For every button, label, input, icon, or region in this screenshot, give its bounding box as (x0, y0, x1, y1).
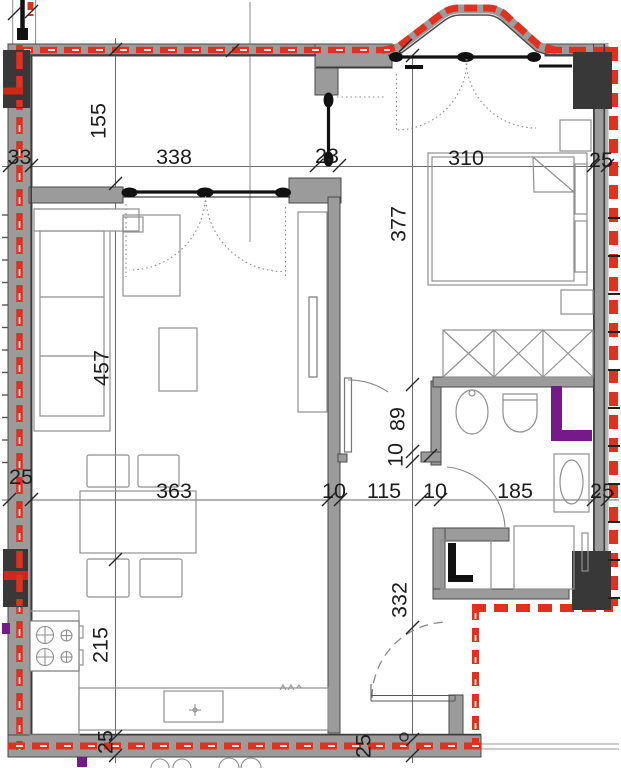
svg-text:310: 310 (448, 146, 484, 170)
svg-text:115: 115 (367, 479, 401, 503)
svg-text:338: 338 (156, 145, 192, 169)
svg-text:25: 25 (9, 465, 33, 489)
svg-text:332: 332 (388, 582, 412, 618)
svg-text:10: 10 (322, 479, 346, 503)
svg-text:363: 363 (156, 479, 192, 503)
svg-text:25: 25 (590, 479, 614, 503)
svg-text:155: 155 (87, 103, 111, 139)
svg-text:25: 25 (94, 730, 118, 754)
svg-text:10: 10 (384, 443, 408, 467)
svg-text:215: 215 (89, 627, 113, 663)
svg-text:89: 89 (386, 407, 410, 431)
svg-text:25: 25 (352, 734, 376, 758)
svg-text:457: 457 (90, 350, 114, 386)
svg-text:23: 23 (315, 144, 339, 168)
svg-text:10: 10 (423, 479, 447, 503)
svg-text:377: 377 (387, 206, 411, 242)
svg-text:33: 33 (8, 145, 32, 169)
svg-text:185: 185 (497, 479, 533, 503)
svg-text:25: 25 (589, 148, 613, 172)
